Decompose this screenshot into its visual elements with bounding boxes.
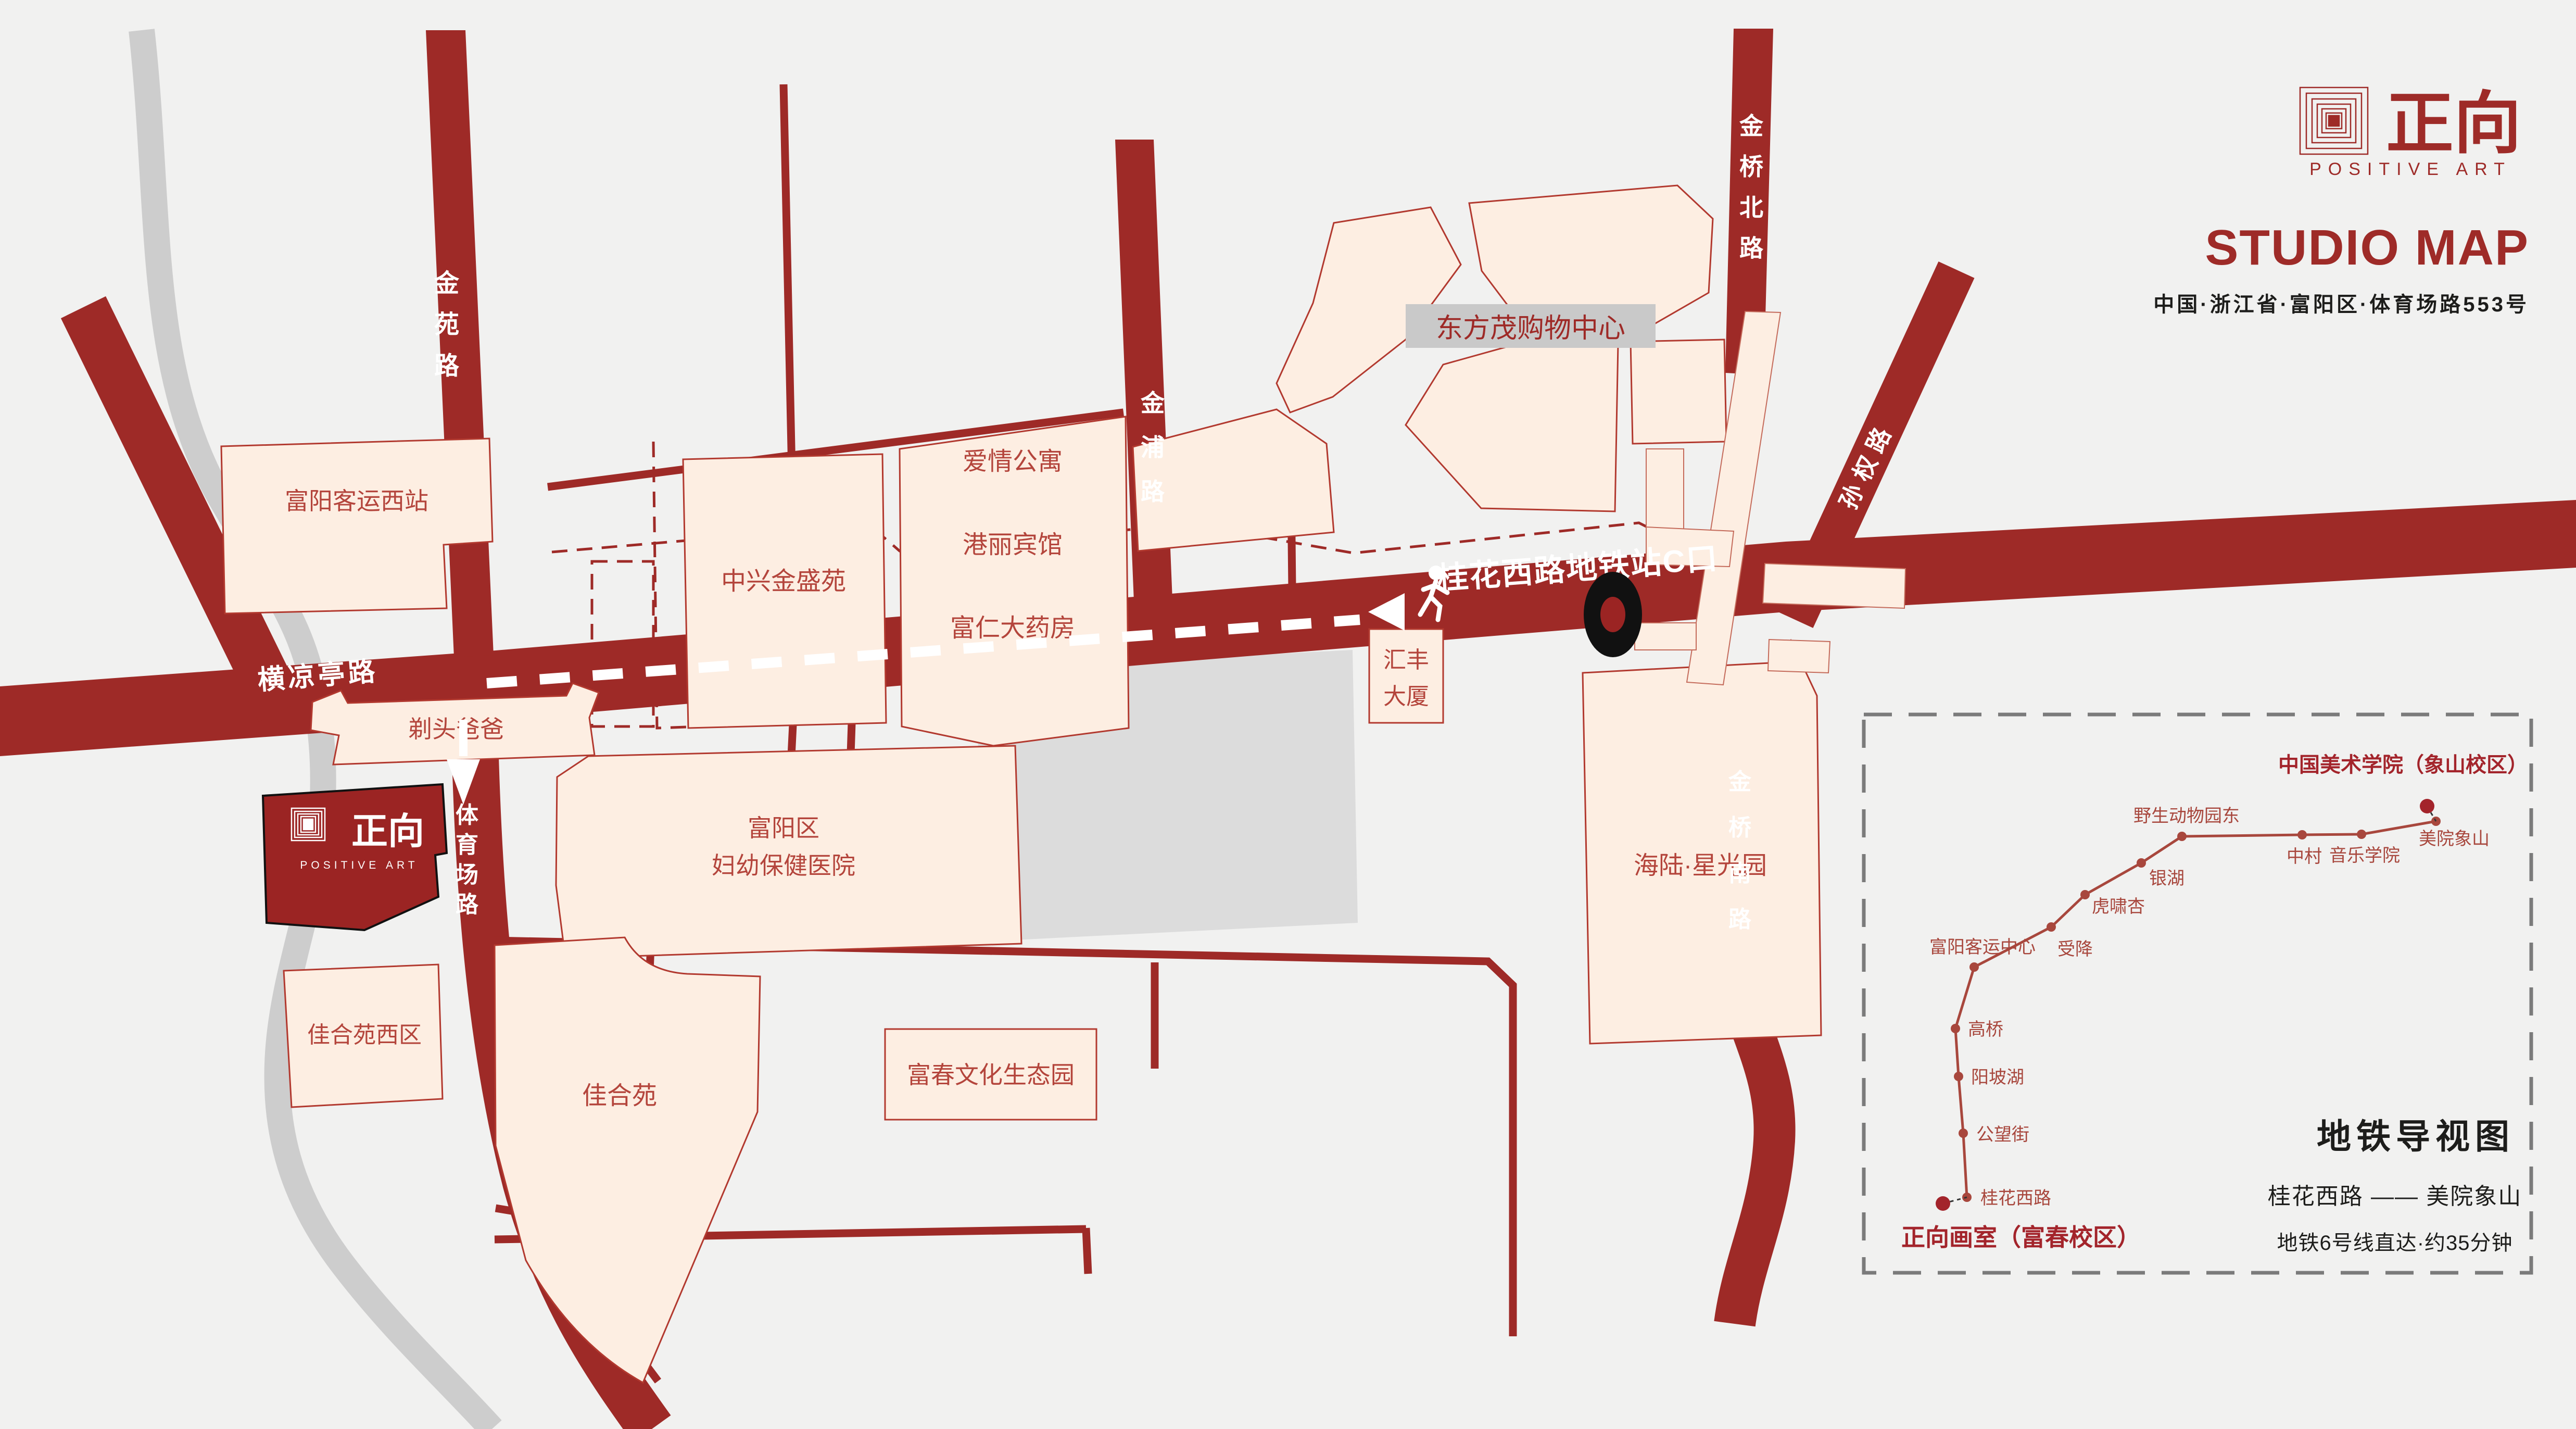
- metro-terminal-label-start: 正向画室（富春校区）: [1901, 1224, 2141, 1251]
- brand-logo-en: POSITIVE ART: [2309, 159, 2511, 179]
- metro-station-label: 野生动物园东: [2133, 806, 2240, 826]
- metro-panel-route: 桂花西路 —— 美院象山: [2268, 1184, 2522, 1209]
- metro-station-dot: [2357, 830, 2366, 839]
- metro-station-dot: [1951, 1024, 1960, 1033]
- label-furen: 富仁大药房: [950, 615, 1075, 642]
- studio-map-page: 富阳客运西站 中兴金盛苑 爱情公寓 港丽宾馆 富仁大药房 东方茂购物中心 汇丰 …: [0, 0, 2576, 1429]
- metro-terminal-dot-end: [2420, 799, 2434, 813]
- metro-station-label: 受降: [2057, 939, 2093, 959]
- metro-station-label: 虎啸杏: [2092, 897, 2145, 917]
- label-hospital-2: 妇幼保健医院: [712, 852, 855, 879]
- metro-station-dot: [2177, 832, 2187, 841]
- label-fuchun-park: 富春文化生态园: [907, 1061, 1075, 1088]
- label-road-jinpu: 金浦路: [1140, 390, 1165, 505]
- metro-station-label: 富阳客运中心: [1929, 937, 2036, 957]
- metro-station-label: 银湖: [2149, 869, 2184, 888]
- metro-exit-marker: [1584, 572, 1642, 657]
- label-gangli: 港丽宾馆: [963, 531, 1063, 559]
- page-title: STUDIO MAP: [2205, 220, 2529, 275]
- studio-logo-cn: 正向: [351, 811, 424, 851]
- label-huifeng-2: 大厦: [1383, 684, 1429, 709]
- label-titou: 剃头爸爸: [408, 716, 504, 743]
- building-hailu: [1583, 641, 1821, 1044]
- metro-station-dot: [2047, 922, 2056, 932]
- metro-station-label: 桂花西路: [1980, 1188, 2051, 1208]
- metro-station-dot: [1959, 1129, 1968, 1138]
- metro-terminal-label-end: 中国美术学院（象山校区）: [2278, 754, 2528, 776]
- brand-logo-cn: 正向: [2386, 85, 2521, 161]
- label-dongfangmao: 东方茂购物中心: [1436, 314, 1625, 344]
- label-hospital-1: 富阳区: [748, 814, 819, 842]
- label-jiaheyuan: 佳合苑: [582, 1082, 657, 1110]
- metro-station-dot: [2137, 858, 2146, 868]
- label-zhongxing: 中兴金盛苑: [721, 568, 846, 595]
- metro-panel-title: 地铁导视图: [2317, 1117, 2515, 1156]
- map-canvas: 富阳客运西站 中兴金盛苑 爱情公寓 港丽宾馆 富仁大药房 东方茂购物中心 汇丰 …: [0, 0, 2576, 1429]
- metro-terminal-dot-start: [1936, 1196, 1950, 1211]
- overpass-arm-southeast: [1768, 640, 1830, 673]
- label-huifeng-1: 汇丰: [1383, 647, 1429, 673]
- label-jiaheyuan-west: 佳合苑西区: [307, 1022, 422, 1048]
- overpass-arm-east: [1763, 563, 1905, 608]
- overpass-hook: [1646, 449, 1684, 529]
- metro-station-label: 中村: [2287, 847, 2322, 867]
- metro-panel-note: 地铁6号线直达·约35分钟: [2277, 1232, 2512, 1255]
- studio-logo-en: POSITIVE ART: [300, 859, 418, 871]
- metro-station-dot: [2080, 890, 2090, 899]
- metro-station-dot: [1954, 1072, 1963, 1081]
- building-mall-east: [1631, 340, 1726, 444]
- route-arrow-shaft: [459, 728, 468, 751]
- metro-station-dot: [2297, 830, 2307, 839]
- minor-road: [1086, 1228, 1088, 1274]
- metro-station-label: 音乐学院: [2329, 846, 2400, 866]
- metro-station-label: 美院象山: [2419, 829, 2490, 849]
- metro-station-label: 高桥: [1968, 1020, 2003, 1039]
- metro-station-label: 公望街: [1976, 1125, 2029, 1145]
- metro-station-label: 阳坡湖: [1971, 1068, 2024, 1087]
- metro-station-dot: [1969, 962, 1979, 972]
- brand-address: 中国·浙江省·富阳区·体育场路553号: [2153, 293, 2529, 316]
- label-fuyang-west-station: 富阳客运西站: [285, 487, 428, 515]
- overpass-exit-walkway: [1635, 623, 1696, 650]
- label-aiqing: 爱情公寓: [963, 448, 1063, 475]
- label-road-jinyuan: 金苑路: [434, 270, 460, 380]
